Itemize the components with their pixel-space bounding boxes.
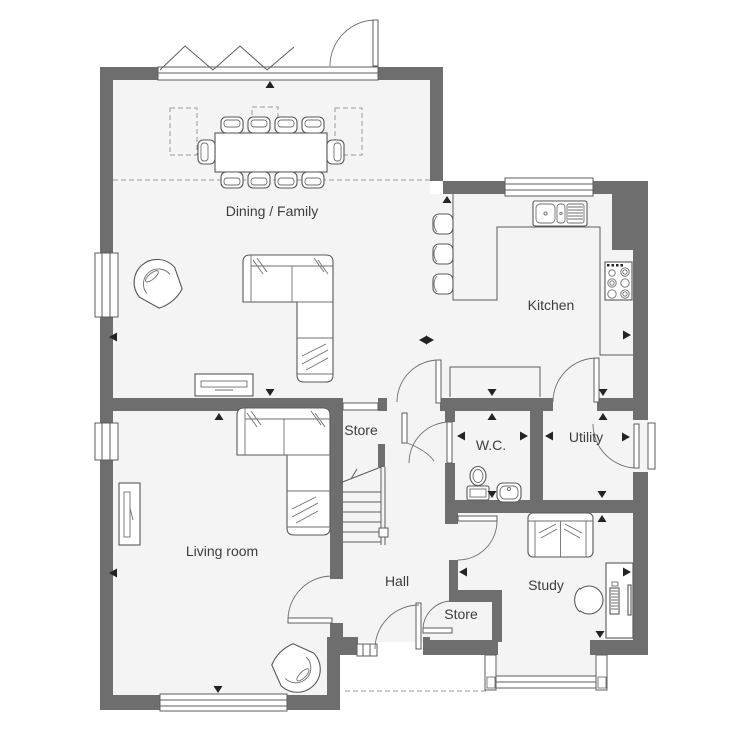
room-label-hall: Hall	[385, 573, 409, 589]
kitchen-sink	[533, 201, 587, 226]
room-label-dining-family: Dining / Family	[226, 203, 319, 219]
garden-door	[330, 20, 378, 66]
room-label-store-lower: Store	[444, 606, 478, 622]
desk-chair	[575, 586, 603, 614]
room-label-wc: W.C.	[476, 437, 506, 453]
room-label-utility: Utility	[569, 429, 603, 445]
monitor	[628, 585, 631, 615]
bifold-doors	[158, 46, 378, 80]
window-living-front	[160, 694, 287, 711]
room-label-store-upper: Store	[344, 422, 378, 438]
floorplan-canvas: Dining / Family Kitchen Living room Hall…	[0, 0, 750, 750]
window-living-left	[95, 423, 118, 460]
room-label-living-room: Living room	[186, 543, 258, 559]
two-seat-sofa-study	[528, 513, 593, 557]
computer-tower	[610, 588, 619, 614]
floor-areas	[113, 80, 648, 695]
hand-basin	[497, 483, 521, 502]
tv-unit-living	[119, 483, 140, 545]
room-label-kitchen: Kitchen	[528, 297, 575, 313]
bar-stools	[433, 214, 453, 294]
utility-door-frame	[648, 423, 655, 469]
side-light-window	[357, 644, 377, 656]
tv-unit-dining	[195, 374, 253, 396]
room-label-study: Study	[528, 577, 564, 593]
floorplan-svg: Dining / Family Kitchen Living room Hall…	[0, 0, 750, 750]
window-kitchen	[505, 178, 593, 196]
hob	[605, 262, 632, 300]
window-dining-left	[95, 253, 118, 317]
